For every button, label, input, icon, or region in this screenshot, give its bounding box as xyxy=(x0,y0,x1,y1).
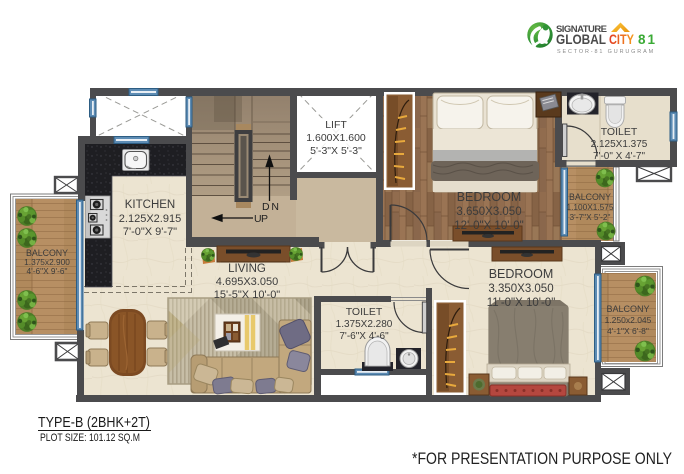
svg-text:UP: UP xyxy=(254,213,268,225)
svg-text:BEDROOM: BEDROOM xyxy=(489,267,554,281)
svg-text:1.100X1.575: 1.100X1.575 xyxy=(566,202,613,212)
svg-text:GLOBAL: GLOBAL xyxy=(556,32,606,47)
svg-text:81: 81 xyxy=(638,32,657,47)
svg-text:15'-5"X 10'-0": 15'-5"X 10'-0" xyxy=(214,289,281,301)
svg-text:TOILET: TOILET xyxy=(346,306,383,318)
svg-text:BALCONY: BALCONY xyxy=(569,192,611,202)
svg-text:BEDROOM: BEDROOM xyxy=(457,190,522,204)
svg-text:1.250x2.045: 1.250x2.045 xyxy=(605,315,652,325)
svg-text:7'-0" X 4'-7": 7'-0" X 4'-7" xyxy=(593,151,646,162)
svg-text:5'-3"X 5'-3": 5'-3"X 5'-3" xyxy=(310,145,362,157)
svg-text:LIVING: LIVING xyxy=(228,263,266,275)
svg-text:4.695X3.050: 4.695X3.050 xyxy=(216,276,278,288)
svg-text:2.125X1.375: 2.125X1.375 xyxy=(591,139,648,150)
svg-text:1.375X2.280: 1.375X2.280 xyxy=(336,319,393,330)
svg-text:SECTOR-81 GURUGRAM: SECTOR-81 GURUGRAM xyxy=(557,49,655,55)
svg-text:BALCONY: BALCONY xyxy=(606,304,649,314)
svg-text:3.350X3.050: 3.350X3.050 xyxy=(488,283,553,295)
svg-text:4'-6"X 9'-6": 4'-6"X 9'-6" xyxy=(27,266,68,276)
svg-text:2.125X2.915: 2.125X2.915 xyxy=(119,213,181,225)
svg-text:11'-0"X 10'-0": 11'-0"X 10'-0" xyxy=(487,297,556,309)
svg-text:1.600X1.600: 1.600X1.600 xyxy=(306,132,366,144)
svg-text:3.650X3.050: 3.650X3.050 xyxy=(456,206,521,218)
svg-text:TOILET: TOILET xyxy=(601,126,638,138)
svg-text:7'-6"X 4'-6": 7'-6"X 4'-6" xyxy=(339,331,389,342)
svg-text:3'-7"X 5'-2": 3'-7"X 5'-2" xyxy=(570,212,611,222)
svg-text:*FOR PRESENTATION PURPOSE ONLY: *FOR PRESENTATION PURPOSE ONLY xyxy=(412,450,672,468)
svg-text:LIFT: LIFT xyxy=(325,119,347,131)
svg-text:4'-1"X 6'-8": 4'-1"X 6'-8" xyxy=(607,326,649,336)
svg-text:12'-0"X 10'-0": 12'-0"X 10'-0" xyxy=(454,220,523,232)
svg-text:TYPE-B (2BHK+2T): TYPE-B (2BHK+2T) xyxy=(38,414,150,431)
svg-text:7'-0"X 9'-7": 7'-0"X 9'-7" xyxy=(123,226,177,238)
svg-text:DN: DN xyxy=(262,201,279,213)
svg-text:CITY: CITY xyxy=(609,32,634,47)
svg-text:PLOT SIZE: 101.12 SQ.M: PLOT SIZE: 101.12 SQ.M xyxy=(40,432,140,444)
svg-text:KITCHEN: KITCHEN xyxy=(125,199,175,211)
